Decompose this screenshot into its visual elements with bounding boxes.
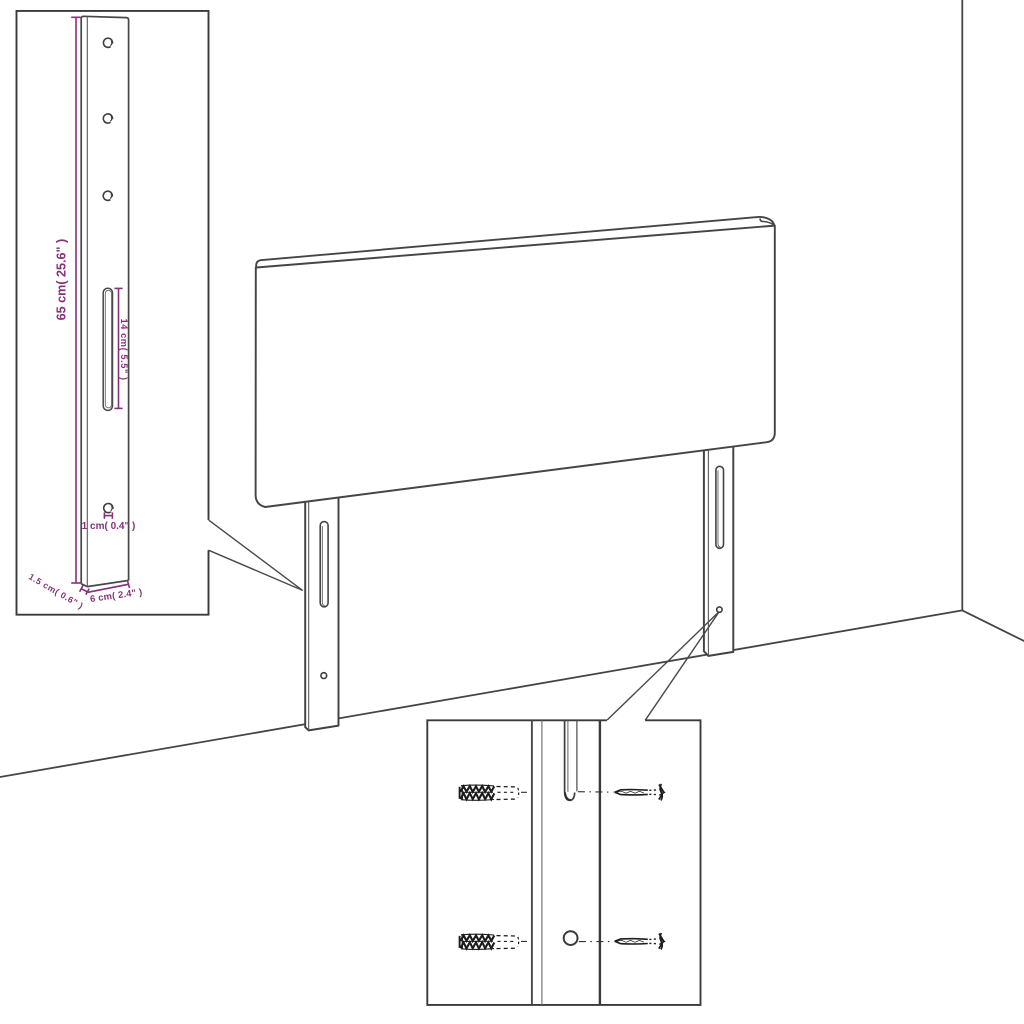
svg-text:1 cm( 0.4" ): 1 cm( 0.4" ): [82, 521, 136, 532]
svg-text:65 cm( 25.6" ): 65 cm( 25.6" ): [55, 239, 69, 321]
svg-text:14 cm( 5.5" ): 14 cm( 5.5" ): [119, 318, 129, 380]
